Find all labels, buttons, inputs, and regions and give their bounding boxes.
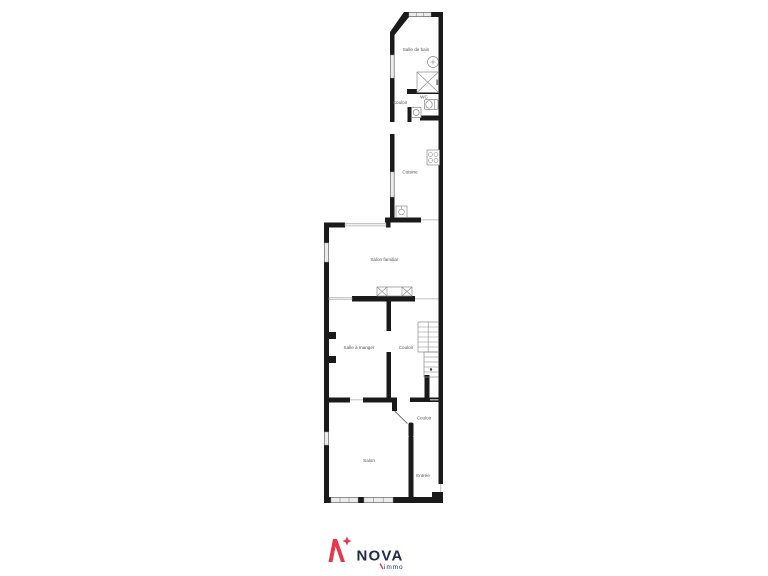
- room-label-couloir-bas: Couloir: [417, 416, 432, 421]
- logo-subtitle-text: immo: [384, 564, 404, 571]
- room-label-couloir-etage: Couloir: [399, 345, 414, 350]
- floor-plan: Salle de bain Couloir WC Cuisine Salon f…: [0, 0, 768, 576]
- window-salon-left: [325, 432, 329, 445]
- logo-brand-text: NOVA: [356, 548, 403, 565]
- room-label-salle-a-manger: Salle à manger: [344, 345, 375, 350]
- staircase-icon: [418, 322, 439, 377]
- page: Salle de bain Couloir WC Cuisine Salon f…: [0, 0, 768, 576]
- window-family-room-left: [325, 243, 329, 262]
- logo-star-icon: [343, 537, 352, 546]
- window-family-room-bottom: [329, 298, 352, 300]
- bathroom-sink-icon: [428, 57, 439, 68]
- sideboard-icon: [377, 287, 412, 296]
- window-bathroom-left: [391, 55, 395, 78]
- stove-icon: [427, 150, 440, 165]
- room-label-couloir-haut: Couloir: [393, 100, 408, 105]
- window-salon-bottom-2: [364, 498, 393, 503]
- room-label-salon: Salon: [363, 458, 375, 463]
- room-label-salle-de-bain: Salle de bain: [403, 47, 430, 52]
- room-label-wc: WC: [420, 95, 428, 100]
- toilet-icon: [425, 100, 439, 110]
- window-salon-bottom-1: [331, 498, 358, 503]
- room-label-salon-familial: Salon familial: [370, 257, 397, 262]
- logo: NOVA immo: [329, 537, 404, 572]
- window-family-room-top: [345, 224, 386, 227]
- wc-sink-icon: [412, 108, 422, 118]
- window-kitchen-left: [391, 172, 395, 197]
- shower-icon: [417, 72, 439, 93]
- kitchen-sink-icon: [396, 206, 407, 218]
- logo-n-mark-icon: [329, 537, 352, 563]
- room-label-cuisine: Cuisine: [402, 170, 418, 175]
- room-label-entree: Entrée: [416, 473, 430, 478]
- window-bathroom-top: [409, 13, 431, 17]
- salon-door-leaf: [395, 411, 408, 424]
